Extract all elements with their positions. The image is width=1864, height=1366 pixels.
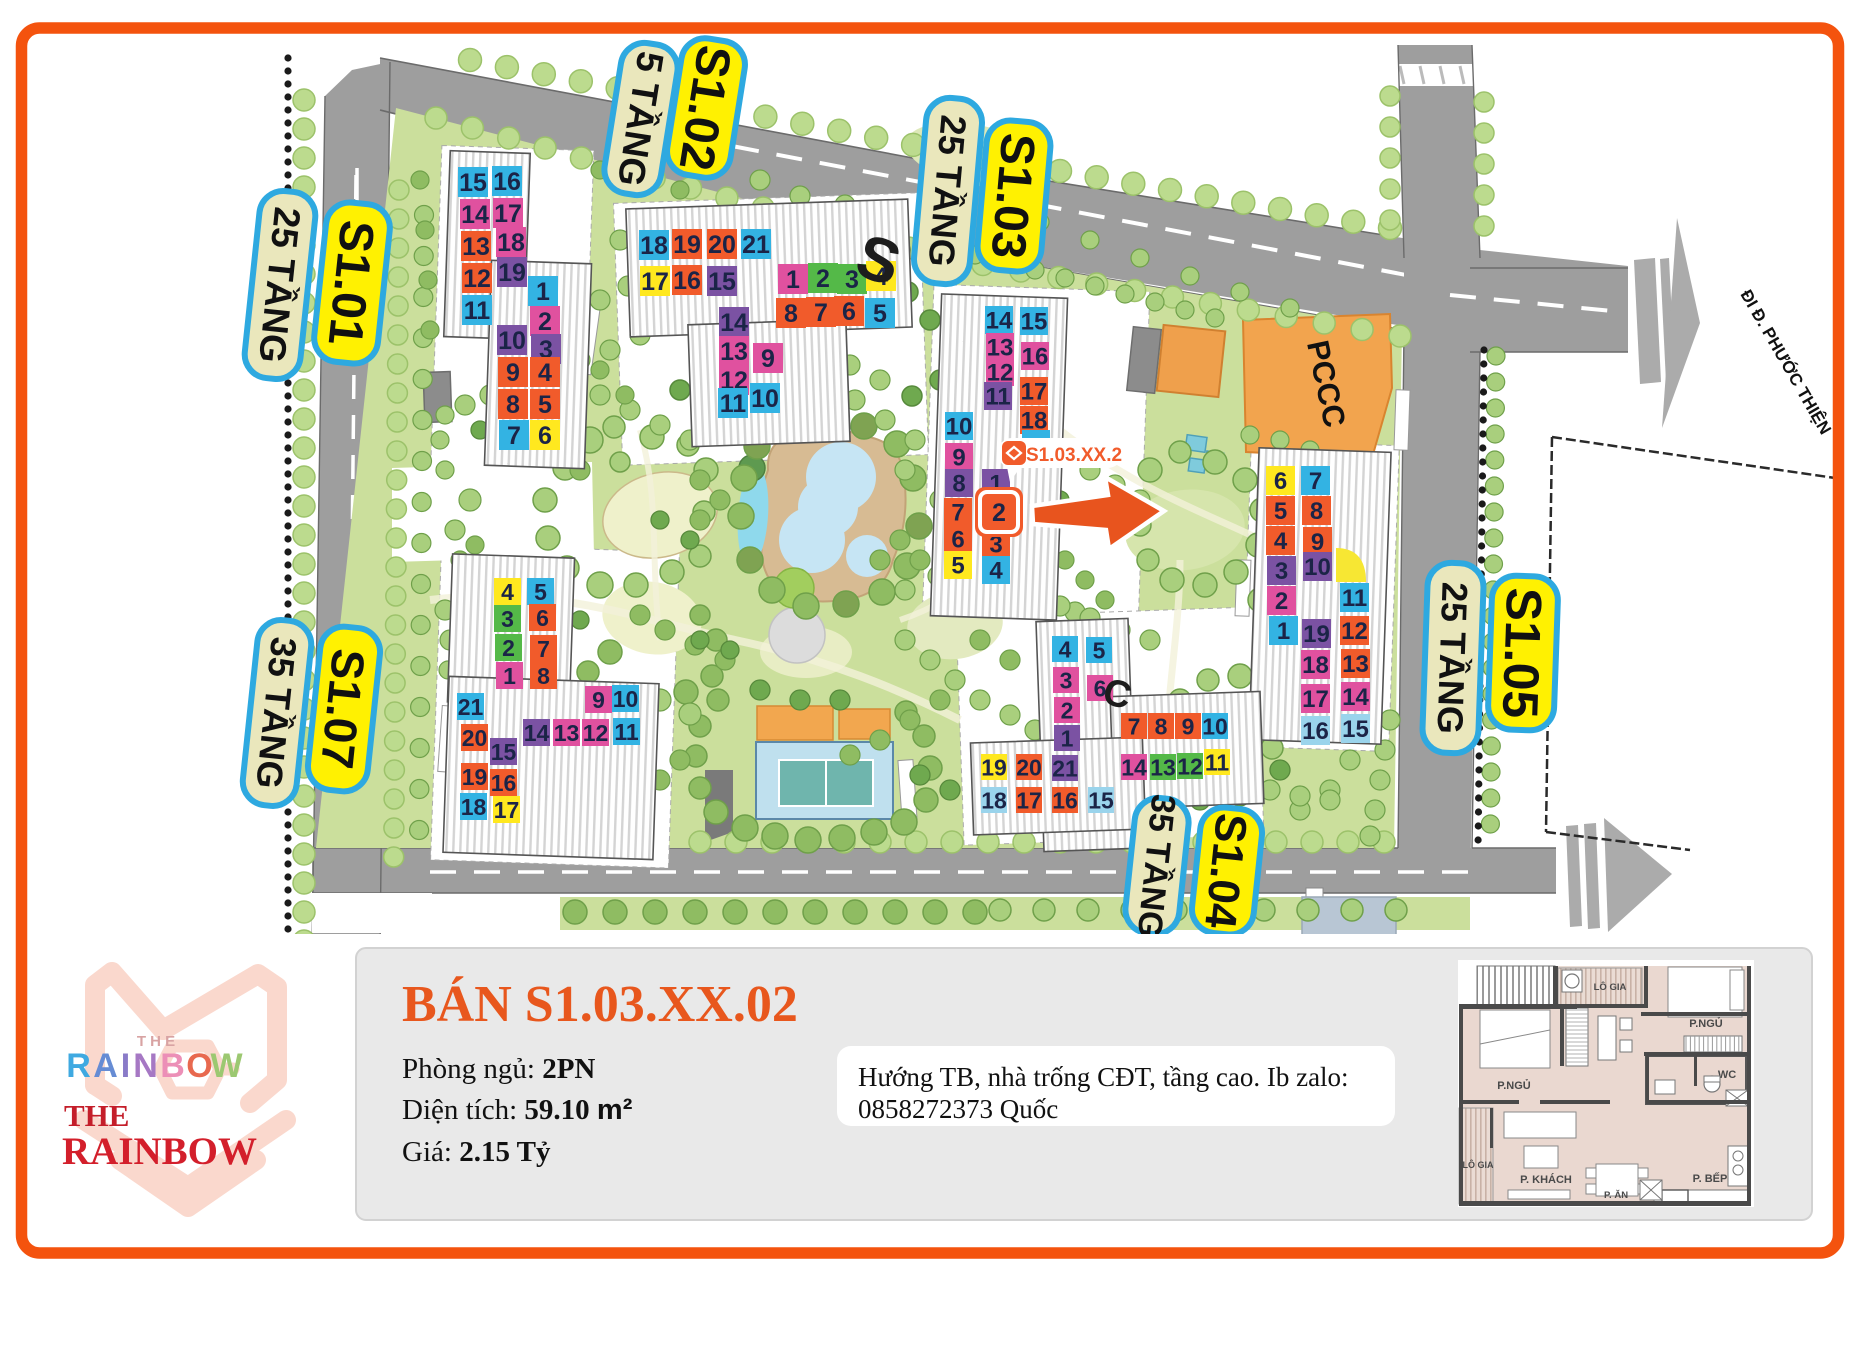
svg-text:13: 13 — [720, 338, 748, 366]
svg-text:N: N — [133, 1047, 158, 1085]
svg-text:7: 7 — [537, 636, 550, 662]
svg-text:2: 2 — [992, 499, 1006, 527]
svg-text:15: 15 — [708, 268, 736, 296]
svg-text:12: 12 — [583, 720, 609, 746]
svg-text:3: 3 — [501, 606, 514, 632]
svg-text:LÔ GIA: LÔ GIA — [1594, 981, 1627, 993]
svg-text:5: 5 — [534, 579, 547, 605]
svg-text:6: 6 — [1274, 468, 1287, 495]
svg-text:17: 17 — [1302, 686, 1329, 713]
svg-text:18: 18 — [640, 232, 668, 260]
svg-text:10: 10 — [946, 414, 973, 441]
svg-text:21: 21 — [1052, 755, 1078, 781]
svg-text:9: 9 — [1182, 713, 1195, 739]
svg-text:15: 15 — [1021, 309, 1048, 336]
svg-text:11: 11 — [464, 297, 491, 325]
svg-text:10: 10 — [498, 327, 526, 355]
svg-text:8: 8 — [952, 471, 965, 498]
svg-text:10: 10 — [1304, 554, 1331, 581]
svg-text:17: 17 — [1021, 379, 1048, 406]
svg-text:15: 15 — [459, 169, 487, 197]
svg-text:8: 8 — [506, 391, 520, 419]
svg-text:1: 1 — [1061, 725, 1074, 751]
svg-text:8: 8 — [537, 663, 550, 689]
svg-text:17: 17 — [494, 797, 520, 823]
svg-text:13: 13 — [462, 233, 490, 261]
svg-text:9: 9 — [952, 445, 965, 472]
svg-text:18: 18 — [461, 794, 487, 820]
svg-text:18: 18 — [1302, 652, 1329, 679]
svg-text:11: 11 — [720, 390, 747, 418]
svg-text:8: 8 — [1310, 498, 1323, 525]
svg-text:19: 19 — [981, 754, 1007, 780]
svg-text:8: 8 — [1155, 713, 1168, 739]
svg-text:4: 4 — [501, 579, 514, 605]
svg-text:6: 6 — [842, 298, 856, 326]
svg-text:1: 1 — [536, 278, 550, 306]
svg-text:5: 5 — [951, 553, 964, 580]
svg-text:16: 16 — [493, 168, 521, 196]
svg-text:1: 1 — [1277, 618, 1290, 645]
svg-text:15: 15 — [491, 739, 517, 765]
svg-text:10: 10 — [1202, 713, 1228, 739]
svg-text:6: 6 — [951, 527, 964, 554]
svg-text:A: A — [93, 1047, 118, 1085]
svg-text:14: 14 — [1121, 754, 1147, 780]
svg-text:16: 16 — [1302, 718, 1329, 745]
svg-text:9: 9 — [761, 345, 775, 373]
svg-text:17: 17 — [494, 200, 522, 228]
svg-text:3: 3 — [1060, 667, 1073, 693]
svg-text:P. BẾP: P. BẾP — [1693, 1172, 1728, 1185]
svg-text:2: 2 — [816, 265, 830, 293]
svg-text:11: 11 — [1205, 749, 1230, 775]
svg-text:P.NGỦ: P.NGỦ — [1497, 1079, 1530, 1092]
svg-text:14: 14 — [1342, 684, 1369, 711]
svg-text:21: 21 — [458, 694, 484, 720]
svg-text:WC: WC — [1718, 1069, 1736, 1081]
svg-text:20: 20 — [1016, 754, 1042, 780]
svg-text:RAINBOW: RAINBOW — [62, 1130, 257, 1173]
svg-text:12: 12 — [463, 265, 491, 293]
svg-text:7: 7 — [1128, 713, 1141, 739]
svg-text:S1.03.XX.2: S1.03.XX.2 — [1026, 445, 1122, 466]
svg-text:S1.03: S1.03 — [981, 131, 1045, 261]
svg-text:1: 1 — [786, 266, 800, 294]
svg-text:15: 15 — [1088, 787, 1114, 813]
svg-text:3: 3 — [1275, 558, 1288, 585]
svg-text:15: 15 — [1342, 716, 1369, 743]
svg-text:13: 13 — [554, 720, 580, 746]
svg-text:8: 8 — [784, 300, 798, 328]
svg-text:11: 11 — [1342, 585, 1367, 612]
svg-text:16: 16 — [1052, 787, 1078, 813]
svg-text:13: 13 — [987, 335, 1014, 362]
svg-text:LÔ GIA: LÔ GIA — [1463, 1159, 1494, 1170]
svg-text:20: 20 — [462, 725, 488, 751]
svg-text:19: 19 — [673, 231, 701, 259]
svg-text:P.NGỦ: P.NGỦ — [1689, 1017, 1722, 1030]
svg-text:P. KHÁCH: P. KHÁCH — [1520, 1173, 1572, 1186]
svg-text:4: 4 — [1274, 528, 1288, 555]
svg-text:21: 21 — [742, 231, 770, 259]
svg-text:5: 5 — [1274, 498, 1287, 525]
svg-text:7: 7 — [814, 299, 828, 327]
svg-text:9: 9 — [592, 687, 605, 713]
svg-text:16: 16 — [1022, 344, 1049, 371]
svg-text:14: 14 — [986, 308, 1013, 335]
svg-text:2: 2 — [538, 308, 552, 336]
svg-text:9: 9 — [506, 359, 520, 387]
svg-text:B: B — [160, 1047, 185, 1085]
svg-text:19: 19 — [1303, 621, 1330, 648]
svg-text:2: 2 — [1275, 588, 1288, 615]
svg-text:13: 13 — [1150, 754, 1176, 780]
svg-text:25 TẦNG: 25 TẦNG — [1429, 581, 1475, 734]
svg-text:16: 16 — [491, 770, 517, 796]
svg-text:THE: THE — [64, 1098, 129, 1133]
svg-text:4: 4 — [1059, 636, 1072, 662]
svg-text:7: 7 — [1309, 468, 1322, 495]
svg-text:Phòng ngủ: 2PN: Phòng ngủ: 2PN — [402, 1053, 595, 1085]
svg-text:4: 4 — [989, 558, 1003, 585]
svg-text:18: 18 — [981, 787, 1007, 813]
svg-text:11: 11 — [985, 384, 1010, 411]
svg-text:Diện tích: 59.10 m²: Diện tích: 59.10 m² — [402, 1094, 633, 1126]
svg-text:5: 5 — [1093, 637, 1106, 663]
svg-text:5: 5 — [538, 391, 552, 419]
svg-text:17: 17 — [1016, 787, 1042, 813]
svg-text:17: 17 — [641, 268, 669, 296]
svg-text:2: 2 — [1061, 697, 1074, 723]
svg-text:4: 4 — [538, 359, 552, 387]
svg-text:BÁN S1.03.XX.02: BÁN S1.03.XX.02 — [402, 975, 798, 1033]
svg-text:18: 18 — [497, 229, 525, 257]
svg-text:6: 6 — [538, 422, 552, 450]
svg-text:10: 10 — [613, 686, 639, 712]
svg-text:2: 2 — [502, 635, 515, 661]
svg-text:20: 20 — [708, 231, 736, 259]
svg-text:11: 11 — [614, 719, 639, 745]
svg-text:14: 14 — [461, 201, 489, 229]
svg-text:P. ĂN: P. ĂN — [1604, 1190, 1628, 1201]
svg-text:O: O — [186, 1047, 212, 1085]
svg-text:12: 12 — [1341, 618, 1368, 645]
svg-text:7: 7 — [507, 422, 521, 450]
svg-text:Giá: 2.15 Tỷ: Giá: 2.15 Tỷ — [402, 1136, 551, 1168]
svg-text:S1.05: S1.05 — [1492, 587, 1553, 720]
svg-text:14: 14 — [720, 309, 748, 337]
svg-text:12: 12 — [1177, 753, 1203, 779]
svg-text:5: 5 — [873, 300, 887, 328]
svg-text:14: 14 — [524, 720, 550, 746]
svg-text:R: R — [66, 1047, 91, 1085]
svg-text:13: 13 — [1342, 651, 1369, 678]
svg-text:19: 19 — [462, 764, 488, 790]
svg-text:1: 1 — [503, 663, 516, 689]
svg-text:W: W — [210, 1047, 243, 1085]
svg-text:10: 10 — [751, 385, 779, 413]
svg-text:6: 6 — [536, 605, 549, 631]
svg-text:7: 7 — [951, 500, 964, 527]
svg-text:0858272373 Quốc: 0858272373 Quốc — [858, 1094, 1058, 1124]
svg-text:I: I — [121, 1047, 130, 1085]
svg-text:16: 16 — [673, 267, 701, 295]
svg-text:Hướng TB, nhà trống CĐT, tầng: Hướng TB, nhà trống CĐT, tầng cao. Ib za… — [858, 1062, 1349, 1092]
svg-text:19: 19 — [498, 259, 526, 287]
